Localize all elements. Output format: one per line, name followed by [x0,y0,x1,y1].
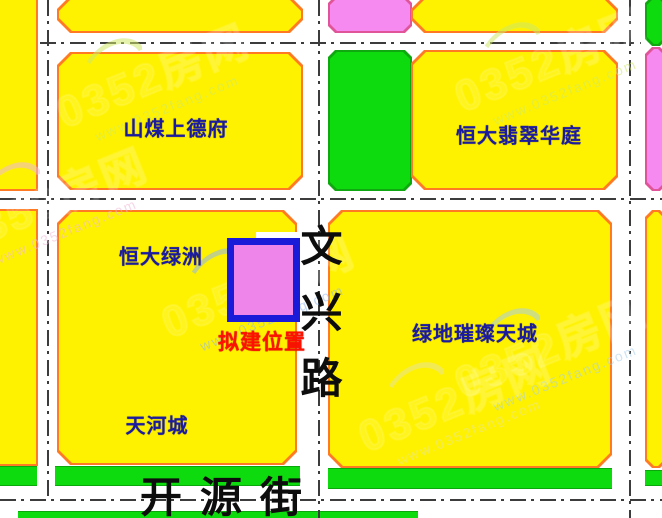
parcel-label-hengda-lvzhou: 恒大绿洲 [119,241,203,270]
parcel-green-corner [645,0,662,46]
parcel-pink-right-strip [645,47,662,191]
parcel-left-strip-top [0,0,38,191]
parcel-right-strip [645,210,662,468]
road-centerline-east [629,0,631,518]
road-centerline-middle [0,198,662,200]
parcel-pink-top [328,0,412,33]
parcel-top-right [411,0,618,33]
parcel-label-tianhecheng: 天河城 [126,410,189,439]
proposed-site-label: 拟建位置 [218,326,306,356]
road-centerline-north [40,42,641,44]
parcel-top-left [57,0,303,33]
green-strip-right [328,468,612,489]
parcel-green-mid [328,50,412,191]
proposed-site-marker [227,238,300,322]
road-label-wenxing-road: 文兴路 [297,224,339,422]
road-centerline-west [47,0,49,500]
green-strip-right-edge [645,470,662,486]
road-label-kaiyuan-street: 开源街 [140,477,320,518]
parcel-left-strip-mid [0,209,38,466]
green-strip-left-edge [0,466,37,486]
parcel-label-shanmei-shangdefu: 山煤上德府 [124,113,229,142]
parcel-label-lvdi-cuican-tiancheng: 绿地璀璨天城 [412,318,538,347]
road-centerline-kaiyuan [0,499,662,501]
planning-map: 0352房网 www.0352fang.com 0352房网 www.0352f… [0,0,662,518]
parcel-label-hengda-feicui-huating: 恒大翡翠华庭 [456,120,582,149]
